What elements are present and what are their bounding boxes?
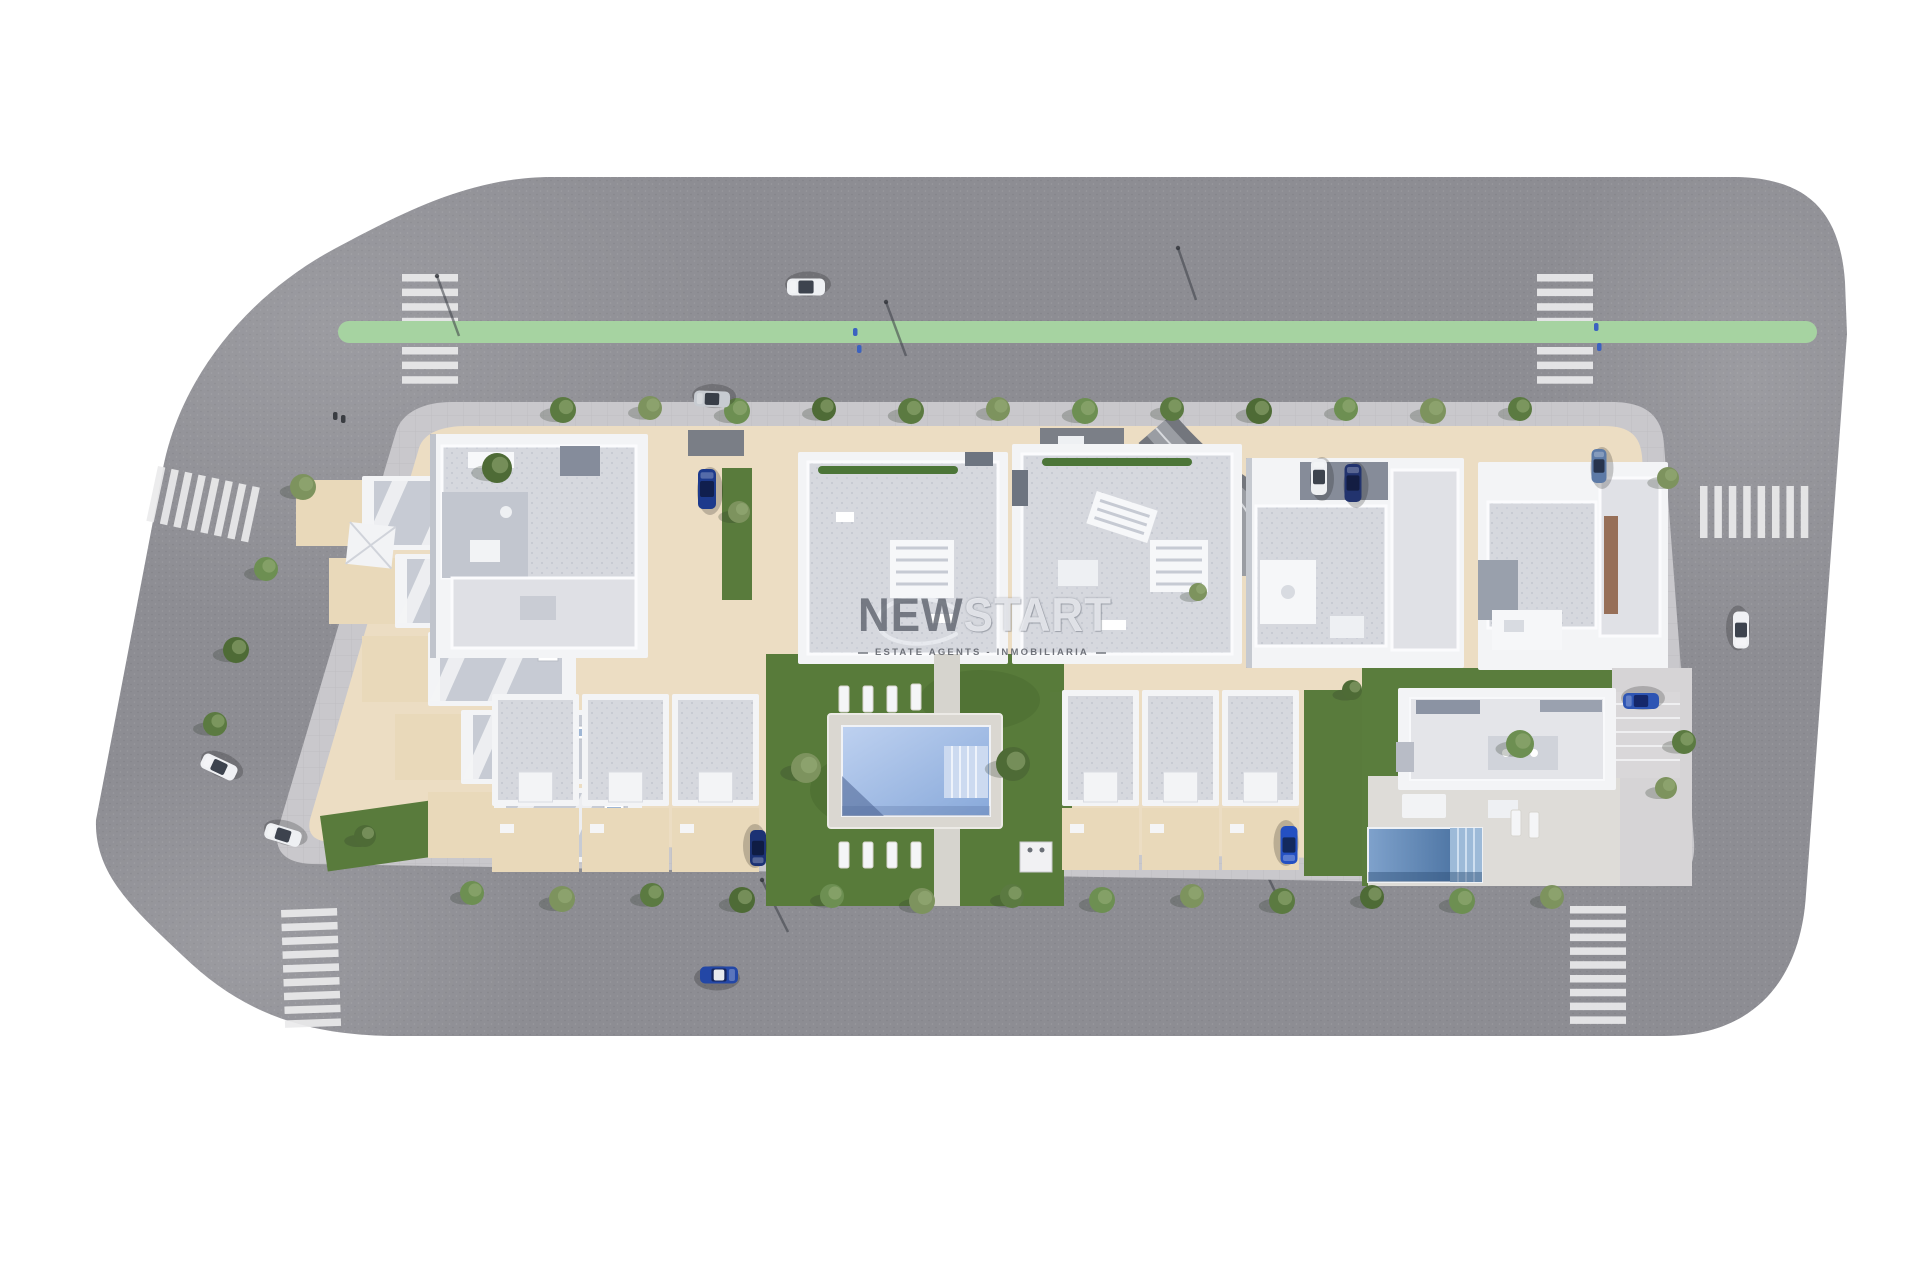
garden-path xyxy=(934,654,960,716)
villa-roof-panels xyxy=(1416,700,1480,714)
crosswalk-bottom-right xyxy=(1570,906,1626,1024)
car-bottom-inner-blue xyxy=(1274,820,1299,866)
crosswalk-stripe xyxy=(402,362,458,370)
crosswalk-stripe xyxy=(1758,486,1766,538)
crosswalk-stripe xyxy=(1570,1016,1626,1024)
car-right-road-white xyxy=(1726,606,1750,651)
crosswalk-stripe xyxy=(1570,961,1626,969)
crosswalk-bottom-left xyxy=(281,908,341,1028)
crosswalk-stripe xyxy=(402,347,458,355)
sun-lounger xyxy=(839,842,849,868)
crosswalk-stripe xyxy=(1537,274,1593,282)
crosswalk-stripe xyxy=(1537,303,1593,311)
wood-pergola xyxy=(1604,516,1618,614)
crosswalk-stripe xyxy=(1786,486,1794,538)
townhouse-row xyxy=(1062,690,1299,870)
crosswalk-stripe xyxy=(1570,947,1626,955)
crosswalk-stripe xyxy=(1714,486,1722,538)
crosswalk-stripe xyxy=(402,376,458,384)
crosswalk-stripe xyxy=(1570,989,1626,997)
crosswalk-stripe xyxy=(1700,486,1708,538)
site-plan-stage: NEWSTART ESTATE AGENTS - INMOBILIARIA xyxy=(0,0,1920,1280)
crosswalk-stripe xyxy=(1537,347,1593,355)
crosswalk-stripe xyxy=(1537,362,1593,370)
pedestrian xyxy=(1594,323,1599,331)
sun-lounger xyxy=(911,842,921,868)
crosswalk-stripe xyxy=(1537,289,1593,297)
pedestrian xyxy=(1597,343,1602,351)
crosswalk-stripe xyxy=(402,274,458,282)
sun-lounger xyxy=(887,686,897,712)
sun-lounger xyxy=(911,684,921,710)
pedestrian xyxy=(341,415,346,423)
car-top-road-white xyxy=(785,272,831,297)
site-plan-render xyxy=(0,0,1920,1280)
villa-dining-set xyxy=(1402,794,1446,818)
crosswalk-stripe xyxy=(1729,486,1737,538)
sun-lounger xyxy=(887,842,897,868)
crosswalk-stripe xyxy=(1570,1003,1626,1011)
car-villa-blue xyxy=(1621,686,1665,710)
crosswalk-stripe xyxy=(402,289,458,297)
lawn xyxy=(722,468,752,600)
crosswalk-stripe xyxy=(1570,920,1626,928)
suv-central-driveway-blue xyxy=(697,467,723,515)
crosswalk-stripe xyxy=(1772,486,1780,538)
car-bottom-road-blue-whiteroof xyxy=(694,966,740,991)
car-bottom-inner-darkblue xyxy=(743,824,767,868)
crosswalk-stripe xyxy=(1570,934,1626,942)
sun-lounger xyxy=(1511,810,1521,836)
crosswalk-stripe xyxy=(1743,486,1751,538)
garden-path xyxy=(934,828,960,906)
townhouse-row xyxy=(492,694,759,872)
sun-lounger xyxy=(1529,812,1539,838)
suv-right-driveway-darkblue xyxy=(1344,462,1369,508)
car-right-driveway-white xyxy=(1310,457,1334,501)
pedestrian xyxy=(333,412,338,420)
apartment-building-nw xyxy=(430,434,648,658)
pedestrian xyxy=(857,345,862,353)
sun-lounger xyxy=(839,686,849,712)
pool-shower xyxy=(1020,842,1052,872)
gazebo xyxy=(346,522,396,569)
villa-roof-panels xyxy=(1540,700,1602,712)
car-topright-block-steelblue xyxy=(1591,447,1614,489)
crosswalk-stripe xyxy=(1570,975,1626,983)
sun-lounger xyxy=(863,842,873,868)
crosswalk-stripe xyxy=(1801,486,1809,538)
apartment-building-ne-b xyxy=(1478,462,1668,670)
crosswalk-stripe xyxy=(1537,376,1593,384)
crosswalk-stripe xyxy=(1570,906,1626,914)
pool-roman-steps xyxy=(944,746,988,798)
sun-lounger xyxy=(863,686,873,712)
pedestrian xyxy=(853,328,858,336)
